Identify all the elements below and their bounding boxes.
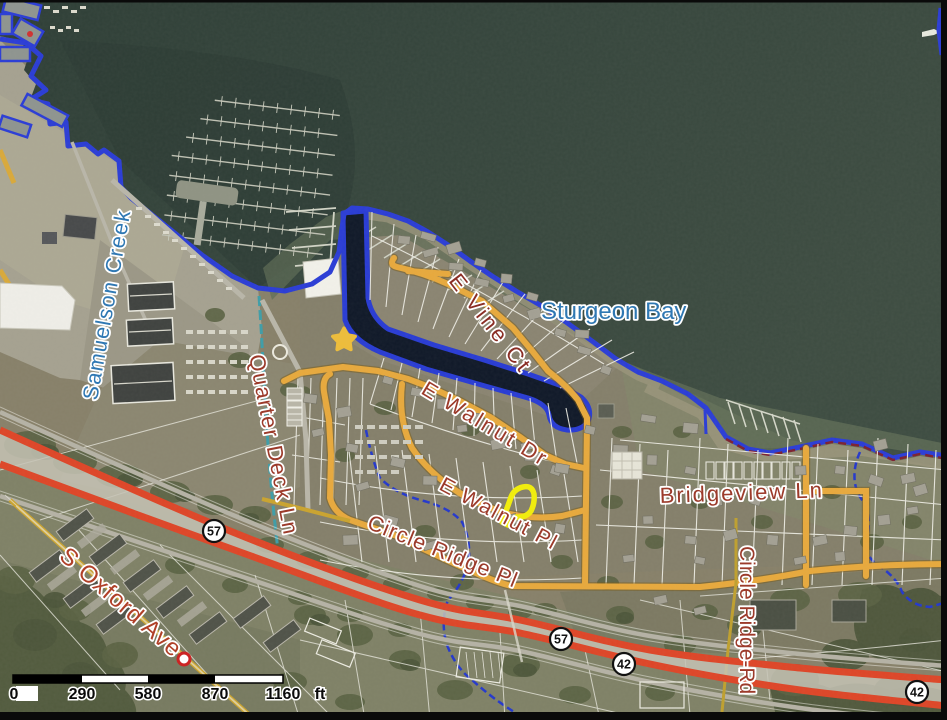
svg-text:42: 42 <box>617 658 631 672</box>
svg-text:Sturgeon Bay: Sturgeon Bay <box>541 298 686 325</box>
svg-text:57: 57 <box>207 525 221 539</box>
svg-text:ft: ft <box>315 686 326 703</box>
svg-text:580: 580 <box>135 686 162 703</box>
svg-text:Circle Ridge-Rd: Circle Ridge-Rd <box>735 546 758 694</box>
svg-text:1160: 1160 <box>266 686 301 703</box>
svg-text:0: 0 <box>10 686 19 703</box>
svg-text:42: 42 <box>910 686 924 700</box>
svg-text:870: 870 <box>202 686 229 703</box>
svg-text:57: 57 <box>554 633 568 647</box>
svg-text:290: 290 <box>69 686 96 703</box>
